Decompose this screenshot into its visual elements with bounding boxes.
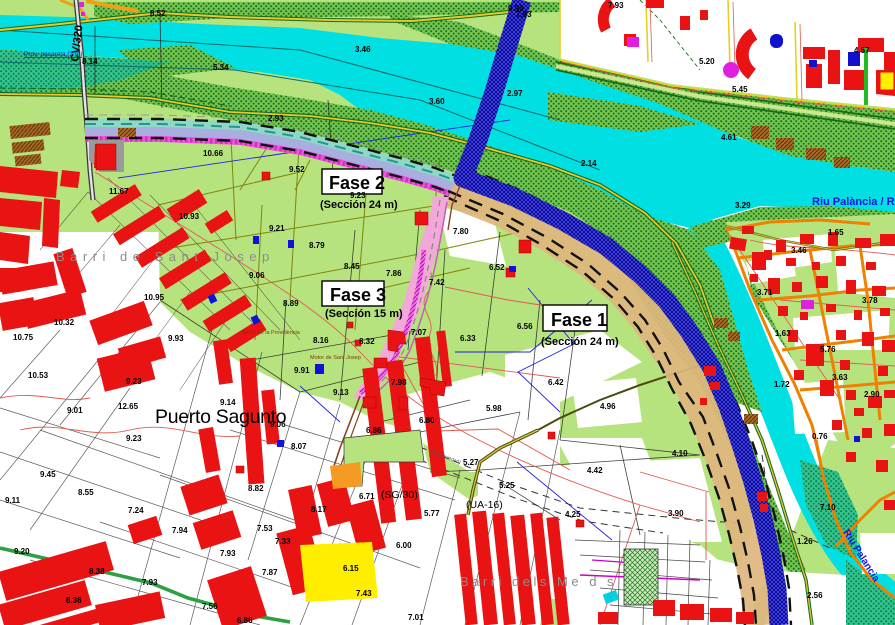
svg-text:(Sección 15 m): (Sección 15 m) [325,308,403,320]
svg-text:6.86: 6.86 [366,426,382,435]
svg-text:8.14: 8.14 [82,57,98,66]
svg-text:8.16: 8.16 [313,336,329,345]
svg-text:6.42: 6.42 [548,378,564,387]
svg-text:Motor de Sant Josep: Motor de Sant Josep [310,355,361,361]
svg-text:9.06: 9.06 [249,271,265,280]
svg-text:6.56: 6.56 [517,322,533,331]
svg-text:10.95: 10.95 [144,293,165,302]
svg-text:(UA-16): (UA-16) [466,499,503,511]
svg-text:2.14: 2.14 [581,159,597,168]
svg-text:7.93: 7.93 [516,10,532,19]
svg-text:10.93: 10.93 [179,212,200,221]
svg-text:5.77: 5.77 [424,509,440,518]
svg-text:7.56: 7.56 [202,602,218,611]
svg-text:4.96: 4.96 [600,402,616,411]
svg-text:5.20: 5.20 [699,57,715,66]
svg-text:7.93: 7.93 [220,549,236,558]
svg-text:0.76: 0.76 [812,432,828,441]
svg-text:9.91: 9.91 [294,366,310,375]
svg-text:7.87: 7.87 [262,568,278,577]
svg-text:9.52: 9.52 [289,165,305,174]
svg-text:3.63: 3.63 [832,373,848,382]
svg-text:7.43: 7.43 [356,589,372,598]
svg-text:5.98: 5.98 [486,404,502,413]
svg-text:5.27: 5.27 [463,458,479,467]
svg-text:9.23: 9.23 [126,434,142,443]
svg-text:9.23: 9.23 [350,191,366,200]
svg-text:10.32: 10.32 [54,318,75,327]
svg-text:7.24: 7.24 [128,506,144,515]
svg-text:8.36: 8.36 [66,596,82,605]
svg-text:8.17: 8.17 [311,505,327,514]
svg-text:Barri de Sant Josep: Barri de Sant Josep [56,249,275,264]
svg-text:10.75: 10.75 [13,333,34,342]
svg-text:8.07: 8.07 [291,442,307,451]
svg-text:Fase 3: Fase 3 [330,285,386,305]
svg-text:3.29: 3.29 [735,201,751,210]
svg-text:7.93: 7.93 [142,578,158,587]
svg-text:4.42: 4.42 [587,466,603,475]
svg-text:3.60: 3.60 [429,97,445,106]
svg-text:5.76: 5.76 [820,345,836,354]
svg-text:7.94: 7.94 [172,526,188,535]
svg-text:6.80: 6.80 [419,416,435,425]
svg-text:7.33: 7.33 [275,537,291,546]
svg-text:7.10: 7.10 [820,503,836,512]
svg-text:2.56: 2.56 [807,591,823,600]
svg-text:11.67: 11.67 [109,187,129,196]
svg-text:5.34: 5.34 [213,63,229,72]
svg-text:Motor de la Providència: Motor de la Providència [242,330,301,336]
svg-text:Barri dels Me d s: Barri dels Me d s [460,574,617,589]
svg-text:6.15: 6.15 [343,564,359,573]
svg-text:9.23: 9.23 [126,377,142,386]
svg-text:8.45: 8.45 [344,262,360,271]
svg-text:12.65: 12.65 [118,402,139,411]
svg-text:3.78: 3.78 [862,296,878,305]
svg-text:5.25: 5.25 [499,481,515,490]
svg-text:7.53: 7.53 [257,524,273,533]
svg-text:6.80: 6.80 [237,616,253,625]
svg-text:7.42: 7.42 [429,278,445,287]
svg-text:Fase 2: Fase 2 [329,173,385,193]
svg-text:9.21: 9.21 [269,224,285,233]
svg-text:3.90: 3.90 [668,509,684,518]
svg-text:1.26: 1.26 [797,537,813,546]
svg-text:7.93: 7.93 [608,1,624,10]
svg-text:7.98: 7.98 [391,378,407,387]
svg-text:3.46: 3.46 [791,246,807,255]
svg-text:4.25: 4.25 [565,510,581,519]
svg-text:6.00: 6.00 [396,541,412,550]
svg-text:2.93: 2.93 [268,114,284,123]
svg-text:4.57: 4.57 [854,46,870,55]
svg-text:(Sección 24 m): (Sección 24 m) [541,336,619,348]
svg-text:Puerto Sagunto: Puerto Sagunto [155,406,287,428]
svg-text:9.01: 9.01 [67,406,83,415]
svg-text:Riu Palància / Río: Riu Palància / Río [812,196,895,208]
svg-text:9.06: 9.06 [270,420,286,429]
svg-text:9.45: 9.45 [40,470,56,479]
svg-text:Prov. pasarela (2 m): Prov. pasarela (2 m) [24,51,82,58]
svg-text:8.89: 8.89 [283,299,299,308]
svg-text:5.45: 5.45 [732,85,748,94]
svg-text:1.72: 1.72 [774,380,790,389]
svg-text:1.65: 1.65 [828,228,844,237]
svg-text:9.93: 9.93 [168,334,184,343]
svg-text:9.13: 9.13 [333,388,349,397]
svg-text:9.20: 9.20 [14,547,30,556]
svg-text:3.46: 3.46 [355,45,371,54]
svg-text:7.01: 7.01 [408,613,424,622]
svg-text:(Sección 24 m): (Sección 24 m) [320,199,398,211]
svg-text:1.63: 1.63 [775,329,791,338]
svg-text:2.97: 2.97 [507,89,523,98]
svg-text:7.80: 7.80 [453,227,469,236]
svg-text:10.66: 10.66 [203,149,224,158]
svg-text:8.55: 8.55 [78,488,94,497]
svg-text:Fase 1: Fase 1 [551,310,607,330]
svg-text:6.52: 6.52 [489,263,505,272]
svg-text:9.11: 9.11 [5,496,21,505]
svg-text:6.71: 6.71 [359,492,375,501]
svg-text:9.14: 9.14 [220,398,236,407]
svg-text:4.61: 4.61 [721,133,737,142]
svg-text:8.32: 8.32 [359,337,375,346]
svg-text:8.79: 8.79 [309,241,325,250]
svg-text:(SG/30): (SG/30) [381,489,418,501]
svg-text:4.10: 4.10 [672,449,688,458]
svg-text:6.33: 6.33 [460,334,476,343]
svg-text:10.53: 10.53 [28,371,49,380]
svg-text:7.86: 7.86 [386,269,402,278]
svg-text:8.38: 8.38 [89,567,105,576]
svg-text:8.52: 8.52 [150,9,166,18]
svg-text:3.71: 3.71 [757,288,773,297]
svg-text:8.82: 8.82 [248,484,264,493]
svg-text:7.07: 7.07 [411,328,427,337]
svg-text:2.90: 2.90 [864,390,880,399]
